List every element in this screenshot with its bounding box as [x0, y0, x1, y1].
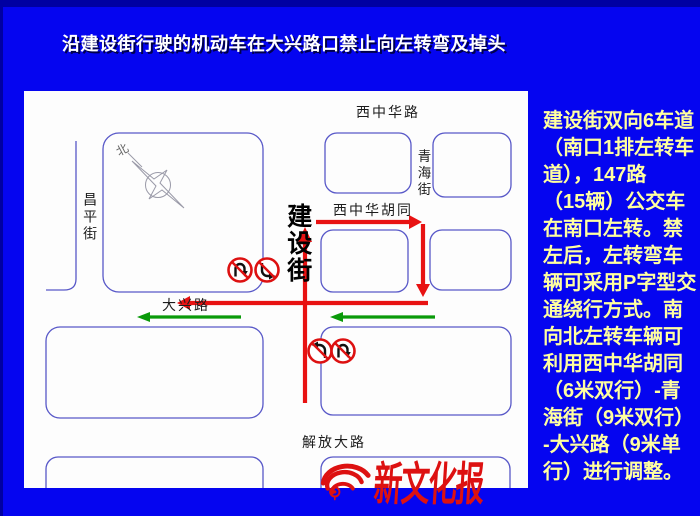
newspaper-logo: 新文化报 [320, 452, 548, 514]
note-line: 辆可采用P字型交 [543, 270, 700, 297]
no-left-turn-sign-icon [256, 259, 279, 282]
note-line: -大兴路（9米单 [543, 432, 700, 459]
city-block [46, 327, 263, 418]
detour-note: 建设街双向6车道 （南口1排左转车 道），147路 （15辆）公交车 在南口左转… [543, 108, 700, 486]
city-block [325, 133, 411, 193]
logo-emblem-icon [320, 450, 372, 514]
compass-rose-icon [128, 153, 184, 208]
map-drawing [24, 91, 528, 488]
note-line: 向北左转车辆可 [543, 324, 700, 351]
city-block [433, 133, 511, 197]
city-block [430, 230, 511, 290]
logo-text: 新文化报 [372, 456, 485, 514]
note-line: 在南口左转。禁 [543, 216, 700, 243]
label-daxing-road: 大兴路 [152, 299, 220, 315]
city-block [321, 230, 408, 292]
city-blocks [46, 133, 511, 488]
note-line: （6米双行）-青 [543, 378, 700, 405]
slide-title: 沿建设街行驶的机动车在大兴路口禁止向左转弯及掉头 [62, 30, 642, 56]
note-line: 通绕行方式。南 [543, 297, 700, 324]
label-changping-street: 昌平街 [80, 185, 96, 249]
changping-street-road-edge [46, 141, 76, 290]
note-line: （15辆）公交车 [543, 189, 700, 216]
no-u-turn-sign-icon [332, 340, 355, 363]
note-line: 建设街双向6车道 [543, 108, 700, 135]
note-line: 海街（9米双行） [543, 405, 700, 432]
city-block [46, 457, 263, 488]
label-jianshe-street: 建设街 [282, 200, 311, 286]
no-left-turn-sign-icon [309, 340, 332, 363]
note-line: 行）进行调整。 [543, 459, 700, 486]
slide: 沿建设街行驶的机动车在大兴路口禁止向左转弯及掉头 [0, 0, 700, 516]
label-qinghai-street: 青海街 [415, 145, 431, 203]
note-line: 左后，左转弯车 [543, 243, 700, 270]
slide-left-border [0, 0, 3, 516]
map-diagram: 西中华路 青海街 西中华胡同 建设街 昌平街 大兴路 解放大路 北 [24, 91, 528, 488]
note-line: 道），147路 [543, 162, 700, 189]
label-west-zhonghua-hutong: 西中华胡同 [326, 204, 420, 220]
no-u-turn-sign-icon [229, 259, 252, 282]
note-line: 利用西中华胡同 [543, 351, 700, 378]
label-west-zhonghua-road: 西中华路 [346, 106, 430, 122]
slide-top-border [0, 0, 700, 7]
note-line: （南口1排左转车 [543, 135, 700, 162]
